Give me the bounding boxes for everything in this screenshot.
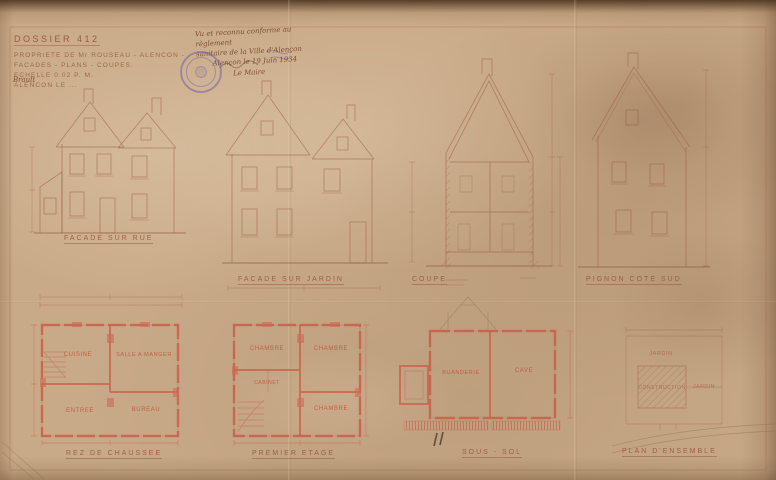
scanned-architectural-drawing-sheet: DOSSIER 412 PROPRIETE DE Mr ROUSEAU - AL… <box>0 0 776 480</box>
caption-facade-jardin: FACADE SUR JARDIN <box>238 276 344 285</box>
room-entree: ENTREE <box>66 408 94 414</box>
room-bureau: BUREAU <box>132 407 161 413</box>
architect-signature: Brault <box>13 76 35 84</box>
room-chambre-3: CHAMBRE <box>314 406 348 412</box>
dimension-chains <box>29 70 709 308</box>
scale-line: ECHELLE 0.02 P. M. <box>14 72 185 79</box>
plan-ensemble-site-drawing <box>612 327 775 453</box>
elevation-facade-jardin-drawing <box>222 81 388 263</box>
caption-plan-ensemble: PLAN D'ENSEMBLE <box>622 448 717 457</box>
room-cave: CAVE <box>515 368 533 374</box>
caption-pignon-sud: PIGNON COTE SUD <box>586 276 682 285</box>
site-construction-label: CONSTRUCTION <box>638 385 685 391</box>
sheet-frame <box>2 27 766 479</box>
title-block: DOSSIER 412 PROPRIETE DE Mr ROUSEAU - AL… <box>14 29 185 89</box>
caption-premier-etage: PREMIER ETAGE <box>252 450 335 459</box>
room-cabinet: CABINET <box>254 380 280 386</box>
caption-coupe: COUPE <box>412 276 447 285</box>
room-chambre-2: CHAMBRE <box>314 346 348 352</box>
room-cuisine: CUISINE <box>64 352 93 358</box>
caption-rez-de-chaussee: REZ DE CHAUSSEE <box>66 450 162 459</box>
caption-sous-sol: SOUS - SOL <box>462 449 522 458</box>
elevation-facade-rue-drawing <box>34 89 186 233</box>
room-buanderie: BUANDERIE <box>442 370 480 376</box>
room-salle-a-manger: SALLE A MANGER <box>116 352 172 358</box>
site-jardin-right-label: JARDIN <box>693 384 715 390</box>
room-chambre-1: CHAMBRE <box>250 346 284 352</box>
contents-line: FACADES - PLANS - COUPES. <box>14 62 185 69</box>
dossier-number: DOSSIER 412 <box>14 34 100 46</box>
plan-premier-etage-drawing <box>232 322 369 446</box>
site-jardin-label: JARDIN <box>649 351 672 357</box>
plan-rez-de-chaussee-drawing <box>31 322 179 446</box>
property-line: PROPRIETE DE Mr ROUSEAU - ALENCON - <box>14 52 185 59</box>
caption-facade-rue: FACADE SUR RUE <box>64 235 153 244</box>
coupe-section-drawing <box>426 59 552 285</box>
place-date-line: ALENCON LE ... <box>14 82 185 89</box>
plan-sous-sol-drawing <box>400 297 573 446</box>
pignon-cote-sud-drawing <box>578 53 710 267</box>
